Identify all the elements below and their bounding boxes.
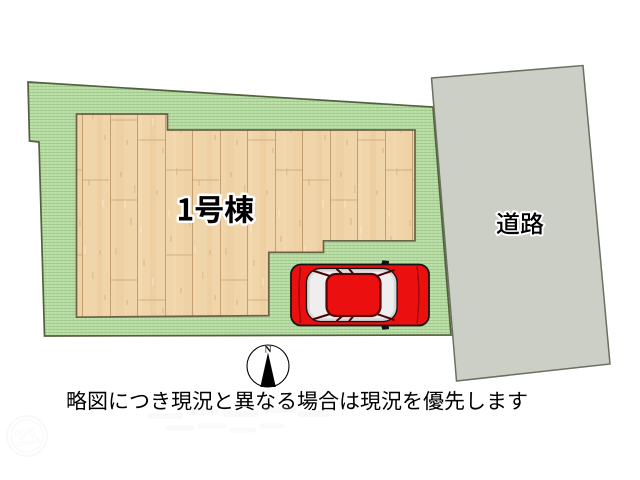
svg-text:21: 21 xyxy=(13,422,42,452)
